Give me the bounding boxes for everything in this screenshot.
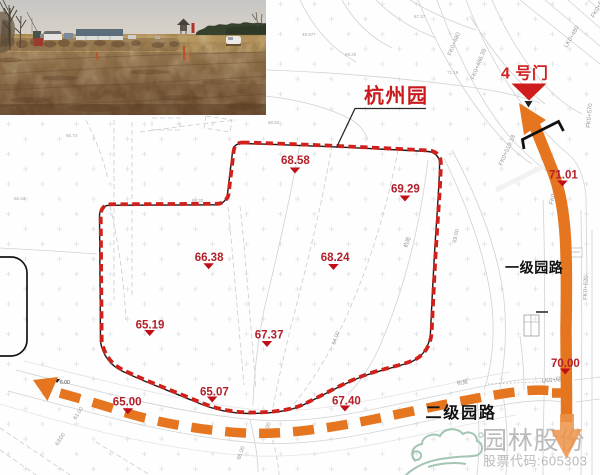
svg-text:66.38: 66.38 [195, 252, 224, 264]
svg-text:66.43: 66.43 [14, 196, 26, 201]
svg-text:6.00: 6.00 [60, 380, 70, 386]
svg-text:65.00: 65.00 [113, 396, 142, 408]
svg-text:70.00: 70.00 [551, 358, 580, 370]
svg-text:一级园路: 一级园路 [505, 260, 564, 276]
svg-text:股票代码:605303: 股票代码:605303 [483, 454, 588, 469]
svg-text:68.24: 68.24 [321, 252, 350, 264]
svg-text:65.19: 65.19 [136, 320, 165, 332]
svg-text:杭州园: 杭州园 [364, 84, 429, 108]
svg-text:66.74: 66.74 [66, 133, 78, 138]
svg-text:69.20: 69.20 [345, 52, 357, 57]
svg-text:71.01: 71.01 [549, 170, 578, 182]
svg-text:68.58: 68.58 [281, 155, 310, 167]
svg-text:68.84: 68.84 [268, 120, 280, 125]
svg-text:67.37: 67.37 [255, 330, 284, 342]
svg-text:4 号门: 4 号门 [501, 64, 548, 83]
svg-text:71.19: 71.19 [447, 70, 459, 75]
svg-text:67.27: 67.27 [414, 14, 426, 19]
svg-text:69.29: 69.29 [391, 184, 420, 196]
svg-text:二级园路: 二级园路 [426, 403, 497, 422]
svg-text:48.97: 48.97 [302, 32, 314, 37]
svg-text:FK0+620: FK0+620 [583, 275, 590, 300]
